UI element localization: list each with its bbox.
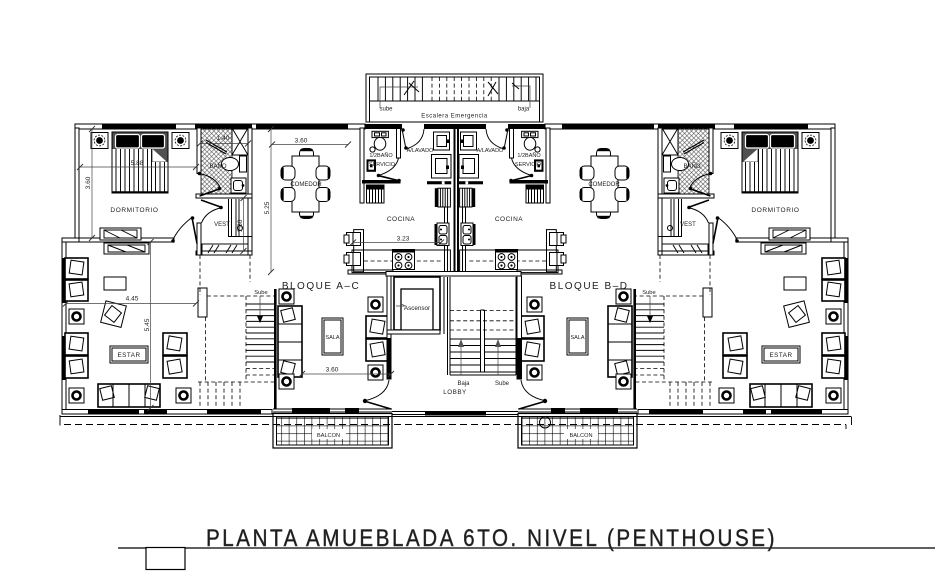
svg-text:ESTAR: ESTAR <box>769 352 792 359</box>
svg-text:BAÑO: BAÑO <box>209 163 226 170</box>
svg-text:Baja: Baja <box>457 381 470 387</box>
svg-text:VEST: VEST <box>214 222 230 228</box>
svg-text:Escalera Emergencia: Escalera Emergencia <box>421 114 488 120</box>
svg-text:COMEDOR: COMEDOR <box>290 182 322 188</box>
svg-text:Sube: Sube <box>642 290 656 296</box>
svg-text:3.60: 3.60 <box>295 138 308 145</box>
svg-text:COCINA: COCINA <box>387 216 415 223</box>
svg-text:1.40: 1.40 <box>217 135 230 142</box>
svg-text:LOBBY: LOBBY <box>443 389 467 396</box>
svg-text:BALCON: BALCON <box>317 433 340 439</box>
svg-text:BLOQUE A–C: BLOQUE A–C <box>282 281 360 292</box>
svg-text:1/2BAÑO: 1/2BAÑO <box>369 152 393 159</box>
svg-text:4.45: 4.45 <box>126 296 139 303</box>
svg-text:Sube: Sube <box>495 381 510 387</box>
svg-text:A/LAVADO: A/LAVADO <box>407 148 434 154</box>
svg-text:PLANTA AMUEBLADA 6TO. NIVEL (P: PLANTA AMUEBLADA 6TO. NIVEL (PENTHOUSE) <box>206 525 777 552</box>
svg-text:3.60: 3.60 <box>326 367 339 374</box>
svg-text:SERVICIO: SERVICIO <box>369 162 396 168</box>
svg-text:1.80: 1.80 <box>237 219 244 232</box>
svg-text:Ascensor: Ascensor <box>404 305 430 312</box>
svg-text:baja: baja <box>518 107 530 113</box>
svg-text:A/LAVADO: A/LAVADO <box>477 148 504 154</box>
svg-text:1/2BAÑO: 1/2BAÑO <box>517 152 541 159</box>
svg-text:COCINA: COCINA <box>495 216 523 223</box>
svg-text:Sube: Sube <box>254 290 268 296</box>
svg-text:DORMITORIO: DORMITORIO <box>751 207 799 214</box>
svg-text:5.45: 5.45 <box>144 318 151 331</box>
svg-text:SERVICIO: SERVICIO <box>515 162 542 168</box>
svg-text:COMEDOR: COMEDOR <box>588 182 620 188</box>
svg-text:ESTAR: ESTAR <box>117 352 140 359</box>
svg-text:SALA: SALA <box>325 335 339 341</box>
svg-text:DORMITORIO: DORMITORIO <box>110 207 158 214</box>
svg-text:5.88: 5.88 <box>131 160 144 167</box>
svg-text:SALA: SALA <box>570 335 584 341</box>
svg-text:BALCON: BALCON <box>569 433 592 439</box>
svg-text:BAÑO: BAÑO <box>683 163 700 170</box>
svg-text:3.23: 3.23 <box>397 236 410 243</box>
svg-text:3.60: 3.60 <box>85 176 92 189</box>
svg-text:VEST: VEST <box>680 222 696 228</box>
svg-text:BLOQUE B–D: BLOQUE B–D <box>550 281 629 292</box>
svg-text:5.25: 5.25 <box>264 201 271 214</box>
svg-text:sube: sube <box>379 107 393 113</box>
